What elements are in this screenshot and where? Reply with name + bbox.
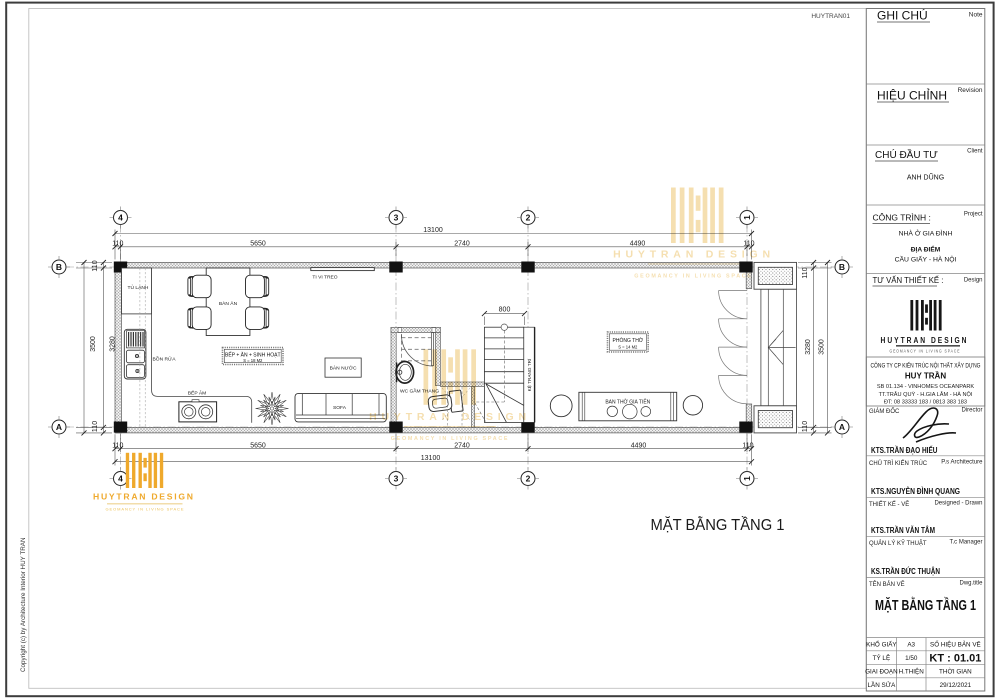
svg-text:KTS.NGUYỄN ĐÌNH QUANG: KTS.NGUYỄN ĐÌNH QUANG	[871, 487, 960, 496]
svg-text:HUYTRAN DESIGN: HUYTRAN DESIGN	[613, 249, 775, 261]
svg-text:ĐỊA ĐIỂM: ĐỊA ĐIỂM	[911, 245, 941, 254]
svg-text:1: 1	[742, 215, 752, 220]
svg-text:KTS.TRẦN VĂN TÂM: KTS.TRẦN VĂN TÂM	[871, 525, 935, 535]
svg-text:KTS.TRẦN ĐẠO HIẾU: KTS.TRẦN ĐẠO HIẾU	[871, 445, 938, 455]
svg-text:KT : 01.01: KT : 01.01	[929, 653, 981, 665]
svg-text:HUYTRAN DESIGN: HUYTRAN DESIGN	[93, 492, 193, 502]
svg-text:110: 110	[802, 267, 809, 278]
svg-text:THỜI GIAN: THỜI GIAN	[939, 667, 972, 676]
svg-text:Project: Project	[964, 212, 983, 218]
svg-text:BAN THỜ GIA TIÊN: BAN THỜ GIA TIÊN	[605, 397, 650, 405]
svg-text:Director: Director	[961, 408, 982, 414]
svg-text:NHÀ Ở GIA ĐÌNH: NHÀ Ở GIA ĐÌNH	[899, 229, 953, 238]
svg-text:4: 4	[118, 474, 123, 484]
svg-text:TỦ LẠNH: TỦ LẠNH	[128, 284, 149, 291]
svg-text:THIẾT KẾ - VẼ: THIẾT KẾ - VẼ	[869, 501, 909, 508]
svg-text:1/50: 1/50	[905, 655, 918, 662]
svg-text:BÀN ĂN: BÀN ĂN	[219, 300, 238, 307]
svg-text:3500: 3500	[90, 336, 97, 352]
svg-text:GIAI ĐOẠN: GIAI ĐOẠN	[865, 669, 898, 676]
svg-text:BẾP ÂM: BẾP ÂM	[188, 389, 206, 396]
svg-text:A: A	[56, 422, 62, 432]
svg-text:13100: 13100	[421, 455, 441, 462]
svg-text:TT.TRÂU QUỲ - H.GIA LÂM - HÀ N: TT.TRÂU QUỲ - H.GIA LÂM - HÀ NỘI	[879, 391, 973, 398]
svg-text:P.s Architecture: P.s Architecture	[941, 460, 983, 466]
svg-text:Client: Client	[967, 149, 983, 155]
svg-text:Design: Design	[964, 278, 983, 284]
svg-text:BÀN NƯỚC: BÀN NƯỚC	[330, 365, 357, 372]
svg-text:3280: 3280	[805, 339, 812, 355]
svg-text:3500: 3500	[819, 339, 826, 355]
svg-text:GEOMANCY IN LIVING SPACE: GEOMANCY IN LIVING SPACE	[890, 349, 961, 354]
svg-text:T.c Manager: T.c Manager	[949, 540, 982, 546]
svg-text:H.THIỆN: H.THIỆN	[899, 667, 925, 676]
svg-text:HUYTRAN01: HUYTRAN01	[811, 13, 850, 20]
svg-text:5650: 5650	[250, 241, 266, 248]
svg-text:HIỆU CHỈNH: HIỆU CHỈNH	[877, 88, 947, 103]
svg-text:MẶT BẰNG TẦNG 1: MẶT BẰNG TẦNG 1	[875, 596, 976, 614]
svg-text:MẶT BẰNG TẦNG 1: MẶT BẰNG TẦNG 1	[651, 516, 785, 534]
svg-text:HUY TRẦN: HUY TRẦN	[905, 371, 946, 381]
svg-text:GEOMANCY IN LIVING SPACE: GEOMANCY IN LIVING SPACE	[634, 274, 752, 280]
svg-text:4490: 4490	[631, 443, 647, 450]
svg-text:110: 110	[92, 260, 99, 271]
svg-text:110: 110	[112, 241, 123, 248]
svg-text:KỆ TRANG TRÍ: KỆ TRANG TRÍ	[525, 358, 532, 391]
svg-text:BỒN RỬA: BỒN RỬA	[153, 356, 177, 363]
svg-text:2: 2	[526, 213, 531, 223]
svg-text:B: B	[839, 262, 845, 272]
svg-text:4490: 4490	[630, 241, 646, 248]
svg-text:B: B	[56, 262, 62, 272]
svg-text:Copyright (c) by Architecture: Copyright (c) by Architecture Interior H…	[20, 537, 27, 672]
svg-text:3: 3	[394, 474, 399, 484]
svg-text:2: 2	[526, 474, 531, 484]
svg-text:CÔNG TRÌNH :: CÔNG TRÌNH :	[873, 213, 931, 223]
svg-text:ANH DŨNG: ANH DŨNG	[907, 173, 944, 182]
svg-text:Note: Note	[969, 12, 983, 19]
svg-text:29/12/2021: 29/12/2021	[940, 682, 972, 689]
svg-text:110: 110	[802, 421, 809, 432]
svg-text:13100: 13100	[423, 227, 443, 234]
svg-text:SOFA: SOFA	[333, 405, 347, 411]
svg-text:PHÒNG THỜ: PHÒNG THỜ	[613, 337, 644, 344]
svg-text:S = 14 M2: S = 14 M2	[618, 344, 638, 349]
svg-text:S = 18 M2: S = 18 M2	[243, 358, 263, 363]
svg-text:TƯ VẤN THIẾT KẾ :: TƯ VẤN THIẾT KẾ :	[873, 275, 944, 285]
svg-text:110: 110	[743, 241, 754, 248]
svg-text:800: 800	[499, 306, 511, 313]
svg-text:CHỦ TRÌ KIẾN TRÚC: CHỦ TRÌ KIẾN TRÚC	[869, 460, 928, 467]
svg-text:GIÁM ĐỐC: GIÁM ĐỐC	[869, 408, 900, 415]
svg-text:HUYTRAN DESIGN: HUYTRAN DESIGN	[881, 335, 969, 345]
svg-text:5650: 5650	[250, 443, 266, 450]
svg-text:QUẢN LÝ KỸ THUẬT: QUẢN LÝ KỸ THUẬT	[869, 540, 927, 547]
svg-text:1: 1	[742, 476, 752, 481]
svg-text:110: 110	[742, 443, 753, 450]
svg-text:HUYTRAN DESIGN: HUYTRAN DESIGN	[369, 411, 531, 423]
svg-text:GEOMANCY IN LIVING SPACE: GEOMANCY IN LIVING SPACE	[106, 507, 184, 512]
svg-text:Dwg.title: Dwg.title	[959, 581, 983, 587]
svg-text:3: 3	[394, 213, 399, 223]
svg-text:Designed - Drawn: Designed - Drawn	[934, 501, 982, 507]
svg-text:A: A	[839, 422, 845, 432]
svg-text:TỶ LỆ: TỶ LỆ	[873, 653, 891, 662]
svg-text:KS.TRẦN ĐỨC THUẬN: KS.TRẦN ĐỨC THUẬN	[871, 566, 940, 576]
svg-text:GHI CHÚ: GHI CHÚ	[877, 8, 928, 23]
svg-text:ĐT: 08 33333 183 / 0813 383 18: ĐT: 08 33333 183 / 0813 383 183	[884, 400, 967, 406]
svg-text:2740: 2740	[454, 443, 470, 450]
svg-text:110: 110	[92, 421, 99, 432]
svg-text:Revision: Revision	[958, 87, 983, 94]
svg-text:4: 4	[118, 213, 123, 223]
svg-text:TI VI TREO: TI VI TREO	[312, 275, 337, 281]
svg-text:110: 110	[112, 443, 123, 450]
svg-text:SB 01.134 - VINHOMES OCEANPARK: SB 01.134 - VINHOMES OCEANPARK	[877, 384, 974, 390]
svg-text:CHÚ ĐẦU TƯ: CHÚ ĐẦU TƯ	[875, 148, 938, 161]
svg-text:TÊN BẢN VẼ: TÊN BẢN VẼ	[869, 580, 905, 588]
svg-text:GEOMANCY IN LIVING SPACE: GEOMANCY IN LIVING SPACE	[391, 436, 509, 442]
svg-text:2740: 2740	[454, 241, 470, 248]
svg-text:A3: A3	[907, 642, 915, 649]
svg-text:3280: 3280	[110, 336, 117, 352]
